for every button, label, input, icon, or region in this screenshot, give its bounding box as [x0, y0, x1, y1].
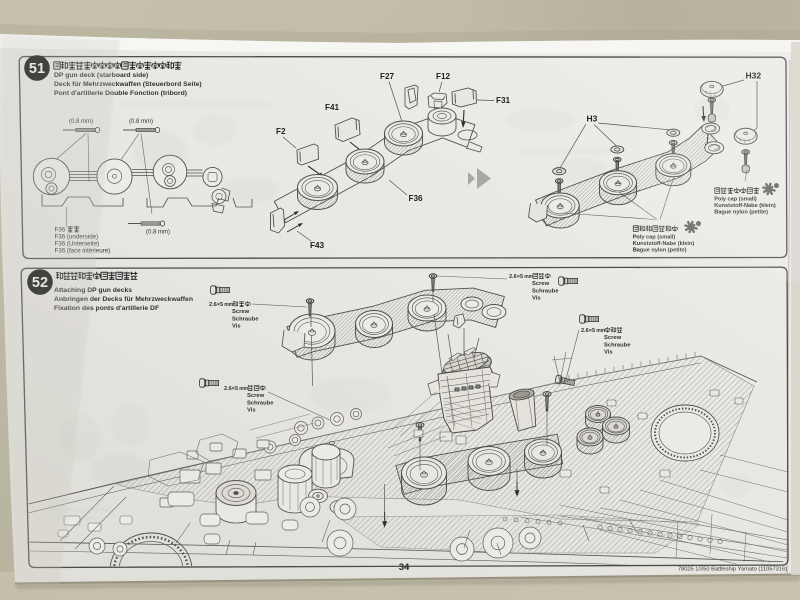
svg-text:Schraube: Schraube: [604, 342, 631, 348]
svg-text:F2: F2: [276, 127, 286, 136]
svg-text:Vis: Vis: [247, 407, 256, 413]
svg-text:2.6×5: 2.6×5: [581, 328, 595, 334]
svg-text:H3: H3: [587, 114, 598, 124]
svg-text:Screw: Screw: [232, 309, 250, 315]
svg-text:Schraube: Schraube: [532, 288, 559, 294]
svg-text:F27: F27: [380, 72, 395, 81]
svg-text:F31: F31: [496, 96, 511, 105]
svg-text:Vis: Vis: [232, 323, 241, 329]
svg-text:F41: F41: [325, 103, 340, 112]
svg-text:78025 1/350 Battleship Yamato: 78025 1/350 Battleship Yamato (11057316): [678, 567, 787, 573]
svg-text:F12: F12: [436, 72, 451, 81]
svg-text:F43: F43: [310, 241, 325, 250]
svg-text:Vis: Vis: [604, 349, 613, 355]
svg-text:Schraube: Schraube: [232, 316, 259, 322]
svg-text:(0.8 mm): (0.8 mm): [146, 230, 170, 236]
svg-text:mm: mm: [239, 386, 248, 392]
svg-text:Screw: Screw: [532, 281, 550, 287]
svg-text:Screw: Screw: [604, 335, 622, 341]
svg-text:F36: F36: [409, 194, 424, 203]
svg-text:2.6×5: 2.6×5: [509, 274, 523, 280]
svg-text:2.6×5: 2.6×5: [209, 302, 223, 308]
svg-text:2.6×5: 2.6×5: [224, 386, 238, 392]
svg-text:mm: mm: [596, 328, 605, 334]
svg-text:mm: mm: [224, 302, 233, 308]
svg-text:Schraube: Schraube: [247, 400, 274, 406]
svg-text:mm: mm: [524, 274, 533, 280]
svg-text:(0.8 mm): (0.8 mm): [129, 119, 153, 125]
svg-text:Vis: Vis: [532, 295, 541, 301]
svg-text:34: 34: [399, 562, 410, 573]
svg-text:Screw: Screw: [247, 393, 265, 399]
